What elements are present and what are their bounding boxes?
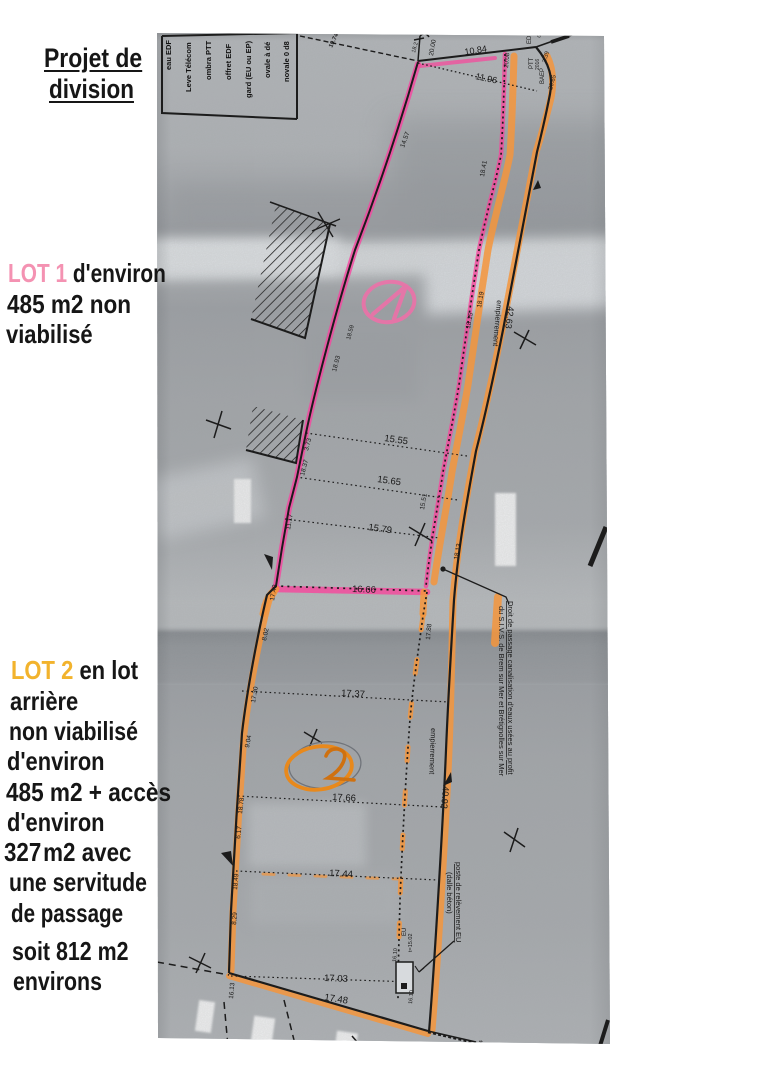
svg-text:BAEP: BAEP bbox=[540, 68, 546, 84]
svg-text:40.92: 40.92 bbox=[439, 786, 451, 809]
svg-text:t=15.02: t=15.02 bbox=[408, 933, 414, 952]
svg-text:15.4: 15.4 bbox=[478, 1040, 485, 1051]
svg-text:Droit de passage canalisation: Droit de passage canalisation d'eaux usé… bbox=[506, 601, 515, 776]
svg-text:gard (EU ou EP): gard (EU ou EP) bbox=[244, 40, 253, 98]
svg-text:16.10: 16.10 bbox=[408, 990, 415, 1004]
svg-text:8.29: 8.29 bbox=[231, 912, 239, 926]
svg-text:17.44: 17.44 bbox=[329, 868, 353, 880]
svg-text:17.37: 17.37 bbox=[341, 688, 365, 700]
svg-text:novale 0 d8: novale 0 d8 bbox=[282, 41, 291, 82]
svg-text:17.88: 17.88 bbox=[425, 623, 433, 640]
svg-text:poste de relèvement EU: poste de relèvement EU bbox=[454, 862, 463, 942]
svg-text:du S.I.V.S. de Brem sur Mer et: du S.I.V.S. de Brem sur Mer et Brétignol… bbox=[497, 606, 506, 777]
svg-text:17.66: 17.66 bbox=[332, 792, 356, 804]
svg-text:offret EDF: offret EDF bbox=[224, 43, 233, 80]
svg-text:Leve Télécom: Leve Télécom bbox=[184, 42, 193, 92]
svg-text:18.49: 18.49 bbox=[232, 873, 240, 890]
svg-text:EDF: EDF bbox=[527, 32, 533, 44]
svg-text:ovale à dé: ovale à dé bbox=[263, 42, 272, 78]
svg-text:eau EDF: eau EDF bbox=[164, 40, 173, 70]
svg-text:16.10: 16.10 bbox=[392, 948, 399, 962]
svg-text:17.03: 17.03 bbox=[324, 973, 348, 985]
svg-text:ombra PTT: ombra PTT bbox=[204, 40, 213, 80]
svg-text:16.66: 16.66 bbox=[352, 584, 376, 596]
svg-text:(dalle béton): (dalle béton) bbox=[445, 872, 454, 914]
svg-text:empierrement: empierrement bbox=[427, 728, 438, 775]
svg-text:16.13: 16.13 bbox=[228, 982, 236, 999]
